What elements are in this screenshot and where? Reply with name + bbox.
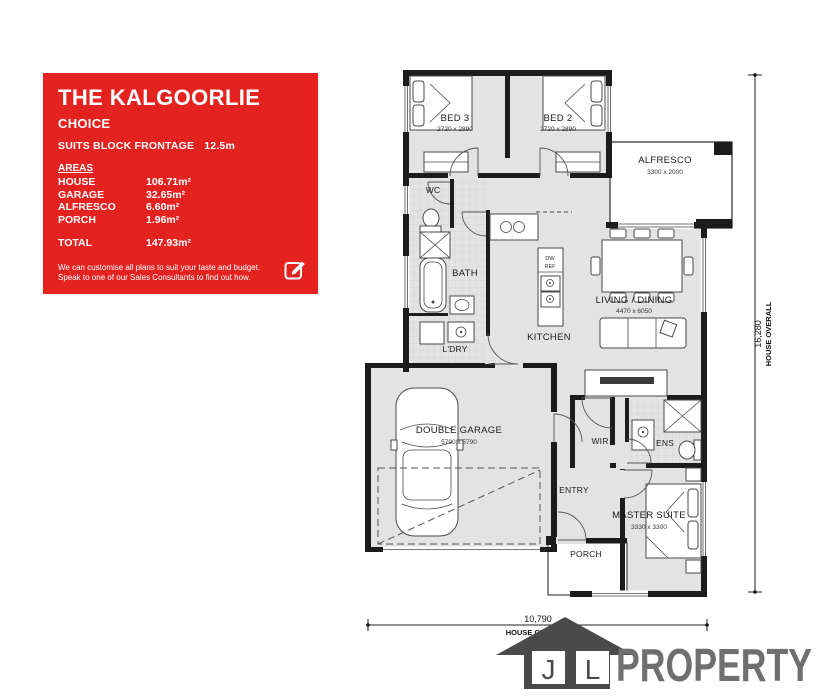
label-ldry: L'DRY (442, 344, 467, 354)
dim-height-value: 16,280 (753, 320, 763, 348)
dims-bed3: 2720 x 2890 (437, 126, 473, 133)
window-wc (403, 186, 410, 214)
sofa (600, 318, 686, 348)
dims-alfresco: 3300 x 2000 (647, 169, 683, 176)
brochure-page: THE KALGOORLIE CHOICE SUITS BLOCK FRONTA… (0, 0, 816, 696)
kitchen-bench (490, 214, 538, 240)
label-ref: REF (545, 264, 557, 270)
label-bed2: BED 2 (544, 113, 573, 124)
dims-living: 4470 x 6050 (616, 308, 652, 315)
label-porch: PORCH (570, 549, 602, 559)
logo-initial-l: L (585, 654, 601, 685)
dims-bed2: 2720 x 2890 (540, 126, 576, 133)
label-dw: DW (545, 256, 555, 262)
window-bath (403, 256, 410, 308)
label-wc: WC (426, 185, 441, 195)
wc-toilet-icon (423, 209, 439, 227)
stacker-door (618, 221, 694, 229)
window-bed3 (403, 86, 410, 132)
label-garage: DOUBLE GARAGE (416, 425, 502, 436)
floorplan-drawing: BED 3 2720 x 2890 BED 2 2720 x 2890 ALFR… (0, 0, 816, 696)
window-living (701, 238, 708, 312)
label-master: MASTER SUITE (612, 510, 686, 521)
window-master-rear (592, 591, 648, 598)
window-master (701, 482, 708, 556)
bath-vanity (450, 296, 474, 314)
window-bed2 (606, 86, 613, 132)
dim-height-label: HOUSE OVERALL (764, 301, 773, 366)
label-ens: ENS (656, 438, 674, 448)
label-alfresco: ALFRESCO (638, 155, 692, 166)
dim-width-value: 10,790 (524, 614, 552, 624)
label-bed3: BED 3 (441, 113, 470, 124)
label-kitchen: KITCHEN (527, 332, 571, 343)
dims-master: 3330 x 3300 (631, 524, 667, 531)
logo-initial-j: J (542, 654, 556, 685)
label-wir: WIR (591, 436, 608, 446)
logo-wordmark: PROPERTY (616, 639, 812, 691)
ens-toilet-icon (679, 441, 695, 459)
car-icon (391, 388, 463, 536)
label-bath: BATH (452, 268, 478, 279)
dining-table (591, 229, 693, 302)
label-entry: ENTRY (559, 485, 589, 495)
label-living: LIVING / DINING (596, 295, 673, 306)
dims-garage: 5790 x 5790 (441, 439, 477, 446)
washer-space (420, 322, 444, 344)
